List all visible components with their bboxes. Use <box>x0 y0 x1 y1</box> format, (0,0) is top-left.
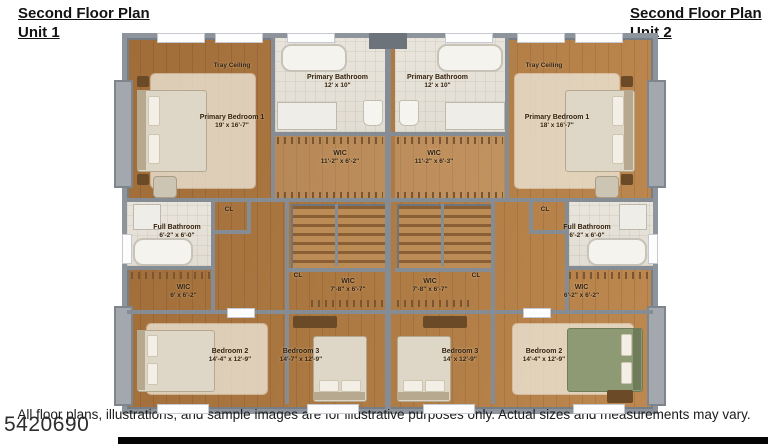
room-name: Bedroom 2 <box>489 348 599 356</box>
floor-plan: Tray Ceiling Primary Bedroom 1 19' x 16'… <box>122 33 658 414</box>
unit1-title-line1: Second Floor Plan <box>18 5 150 24</box>
room-name: WIC <box>389 150 479 158</box>
room-label-unit1-primary-bathroom: Primary Bathroom 12' x 10" <box>285 74 390 90</box>
dresser-icon <box>293 316 337 328</box>
room-dims: 19' x 16'-7" <box>177 122 287 130</box>
room-label-unit2-full-bathroom: Full Bathroom 6'-2" x 6'-0" <box>541 224 633 240</box>
room-label-unit2-wic-side: WIC 6'-2" x 6'-2" <box>539 284 624 300</box>
headboard-icon <box>137 330 145 390</box>
room-label-unit2-primary-bedroom: Primary Bedroom 1 18' x 16'-7" <box>502 114 612 130</box>
nightstand-icon <box>137 174 149 185</box>
window-icon <box>157 33 205 43</box>
window-icon <box>517 33 565 43</box>
nightstand-icon <box>621 174 633 185</box>
pillow-icon <box>148 96 160 126</box>
room-label-unit2-wic-upper: WIC 11'-2" x 6'-3" <box>389 150 479 166</box>
stairs-unit1-icon <box>291 204 387 270</box>
room-name: WIC <box>389 278 471 286</box>
room-label-unit1-cl-upper: CL <box>209 206 249 214</box>
pillow-icon <box>621 334 632 356</box>
room-name: WIC <box>141 284 226 292</box>
pillow-icon <box>147 335 158 357</box>
window-icon <box>157 404 209 414</box>
wall <box>127 266 215 270</box>
bay-window-right-top <box>647 80 666 188</box>
room-name: WIC <box>295 150 385 158</box>
room-label-unit2-cl-upper: CL <box>525 206 565 214</box>
window-icon <box>575 33 623 43</box>
wall <box>127 310 653 314</box>
pillow-icon <box>341 380 361 392</box>
wall <box>565 266 653 270</box>
listing-number: 5420690 <box>4 413 89 437</box>
tray-ceiling-label-unit1: Tray Ceiling <box>187 62 277 70</box>
label-text: Tray Ceiling <box>526 62 563 69</box>
room-dims: 18' x 16'-7" <box>502 122 612 130</box>
room-dims: 6'-2" x 6'-2" <box>539 292 624 300</box>
toilet-icon <box>363 100 383 126</box>
label-text: CL <box>225 206 234 213</box>
disclaimer-text: All floor plans, illustrations, and samp… <box>0 407 768 422</box>
window-icon <box>573 404 625 414</box>
closet-shelves-icon <box>569 272 649 279</box>
room-dims: 7'-8" x 6'-7" <box>389 286 471 294</box>
bay-window-left-bottom <box>114 306 133 406</box>
room-name: Bedroom 3 <box>255 348 347 356</box>
bathtub-icon <box>133 238 193 266</box>
window-icon <box>215 33 263 43</box>
room-dims: 11'-2" x 6'-2" <box>295 158 385 166</box>
pillow-icon <box>319 380 339 392</box>
dresser-icon <box>423 316 467 328</box>
bay-window-right-bottom <box>647 306 666 406</box>
room-label-unit1-full-bathroom: Full Bathroom 6'-2" x 6'-0" <box>131 224 223 240</box>
closet-shelves-icon <box>277 137 383 144</box>
headboard-icon <box>624 90 633 170</box>
room-label-unit1-bedroom3: Bedroom 3 14'-7" x 12'-9" <box>255 348 347 364</box>
label-text: Tray Ceiling <box>214 62 251 69</box>
pillow-icon <box>612 134 624 164</box>
stair-rail <box>441 204 444 266</box>
unit2-wic-upper-floor <box>395 136 505 200</box>
room-name: Primary Bedroom 1 <box>502 114 612 122</box>
room-name: WIC <box>539 284 624 292</box>
room-name: WIC <box>307 278 389 286</box>
wall <box>285 200 289 310</box>
closet-shelves-icon <box>311 300 383 307</box>
room-label-unit1-wic-upper: WIC 11'-2" x 6'-2" <box>295 150 385 166</box>
headboard-icon <box>137 90 146 170</box>
listing-floorplan-image: Second Floor Plan Unit 1 Second Floor Pl… <box>0 0 768 444</box>
headboard-icon <box>633 328 641 390</box>
dresser-icon <box>607 390 633 403</box>
pillow-icon <box>148 134 160 164</box>
pillow-icon <box>425 380 445 392</box>
room-label-unit2-bedroom2: Bedroom 2 14'-4" x 12'-9" <box>489 348 599 364</box>
pillow-icon <box>147 363 158 385</box>
window-icon <box>423 404 475 414</box>
wall <box>491 200 495 310</box>
label-text: CL <box>294 272 303 279</box>
room-name: Primary Bathroom <box>285 74 390 82</box>
room-name: Full Bathroom <box>541 224 633 232</box>
bathtub-icon <box>281 44 347 72</box>
room-dims: 6'-2" x 6'-0" <box>131 232 223 240</box>
roof-recess <box>369 33 407 49</box>
bay-window-left-top <box>114 80 133 188</box>
pillow-icon <box>612 96 624 126</box>
headboard-icon <box>397 392 449 400</box>
unit2-title-line1: Second Floor Plan <box>630 5 762 24</box>
window-icon <box>648 234 658 264</box>
pillow-icon <box>621 362 632 384</box>
bottom-black-bar <box>118 437 768 444</box>
room-dims: 6'-2" x 6'-0" <box>541 232 633 240</box>
room-label-unit1-primary-bedroom: Primary Bedroom 1 19' x 16'-7" <box>177 114 287 130</box>
room-dims: 11'-2" x 6'-3" <box>389 158 479 166</box>
label-text: CL <box>541 206 550 213</box>
room-label-unit2-primary-bathroom: Primary Bathroom 12' x 10" <box>385 74 490 90</box>
closet-shelves-icon <box>131 272 211 279</box>
party-wall <box>385 38 391 409</box>
wall <box>127 198 653 202</box>
bathtub-icon <box>587 238 647 266</box>
window-icon <box>287 33 335 43</box>
room-label-unit1-wic-side: WIC 6' x 6'-2" <box>141 284 226 300</box>
window-icon <box>445 33 493 43</box>
armchair-icon <box>595 176 619 198</box>
nightstand-icon <box>621 76 633 87</box>
unit1-wic-upper-floor <box>275 136 385 200</box>
toilet-icon <box>399 100 419 126</box>
room-label-unit1-wic-hall: WIC 7'-8" x 6'-7" <box>307 278 389 294</box>
room-dims: 14'-7" x 12'-9" <box>255 356 347 364</box>
room-dims: 7'-8" x 6'-7" <box>307 286 389 294</box>
room-name: Full Bathroom <box>131 224 223 232</box>
room-dims: 12' x 10" <box>385 82 490 90</box>
nightstand-icon <box>137 76 149 87</box>
tray-ceiling-label-unit2: Tray Ceiling <box>499 62 589 70</box>
room-label-unit2-wic-hall: WIC 7'-8" x 6'-7" <box>389 278 471 294</box>
label-text: CL <box>472 272 481 279</box>
window-icon <box>307 404 359 414</box>
wall <box>391 132 509 136</box>
headboard-icon <box>313 392 365 400</box>
closet-shelves-icon <box>397 300 469 307</box>
door-opening <box>523 308 551 318</box>
room-dims: 14'-4" x 12'-9" <box>489 356 599 364</box>
room-name: Primary Bedroom 1 <box>177 114 287 122</box>
room-name: Primary Bathroom <box>385 74 490 82</box>
pillow-icon <box>403 380 423 392</box>
closet-shelves-icon <box>397 137 503 144</box>
stair-rail <box>335 204 338 266</box>
vanity-icon <box>445 102 505 130</box>
armchair-icon <box>153 176 177 198</box>
room-dims: 12' x 10" <box>285 82 390 90</box>
door-opening <box>227 308 255 318</box>
room-dims: 6' x 6'-2" <box>141 292 226 300</box>
stairs-unit2-icon <box>397 204 493 270</box>
wall <box>271 132 389 136</box>
bathtub-icon <box>437 44 503 72</box>
